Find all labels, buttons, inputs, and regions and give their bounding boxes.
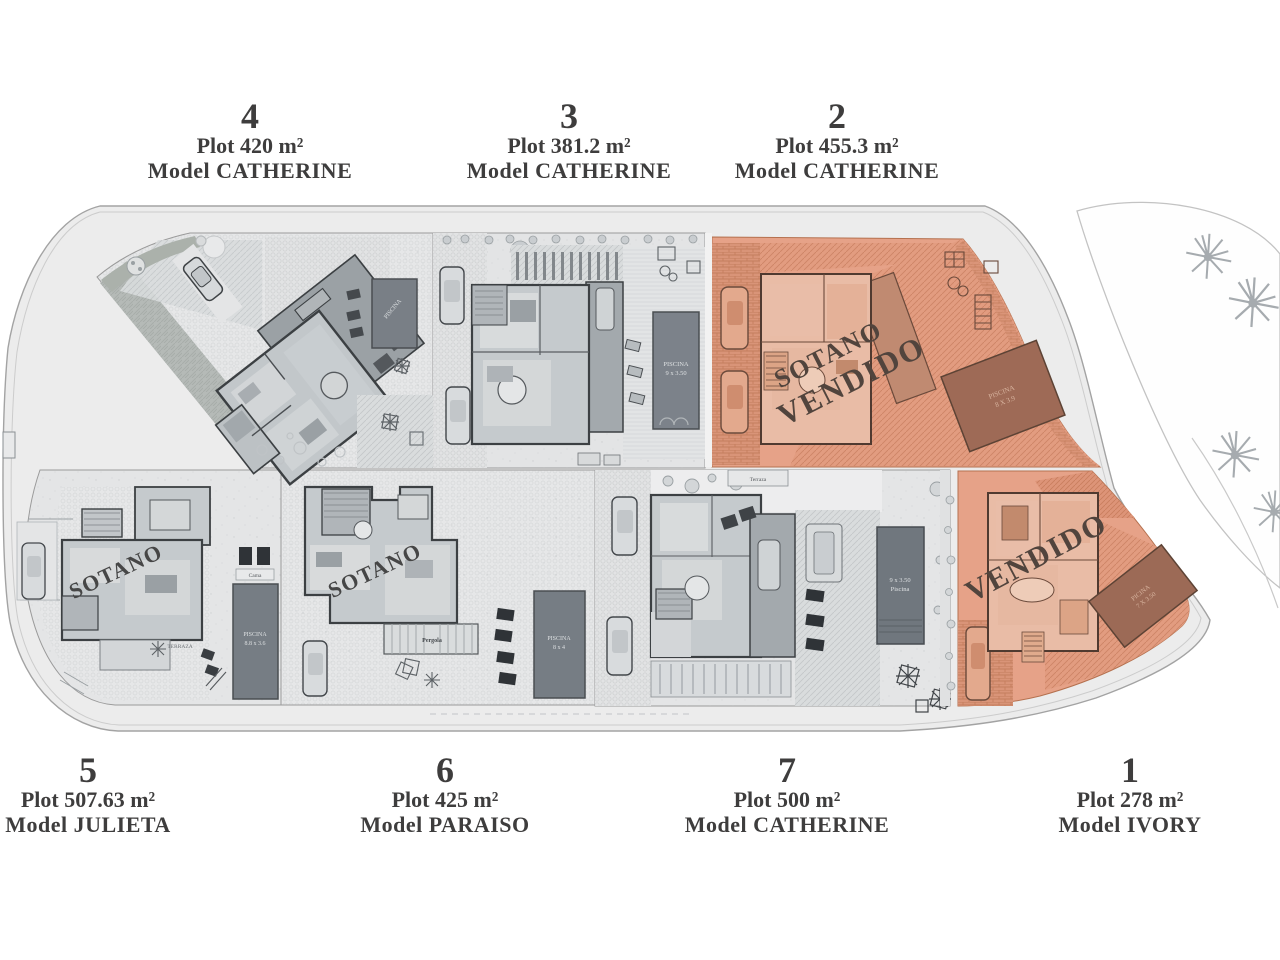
svg-text:8.8 x 3.6: 8.8 x 3.6 [245,641,266,647]
svg-text:9 x 3.50: 9 x 3.50 [889,577,910,584]
svg-text:Pergola: Pergola [422,638,442,644]
svg-text:PISCINA: PISCINA [547,636,571,642]
svg-text:PISCINA: PISCINA [243,632,267,638]
svg-text:Piscina: Piscina [891,586,910,593]
svg-text:PISCINA: PISCINA [663,361,689,368]
svg-text:8 x 4: 8 x 4 [553,645,565,651]
svg-text:TERRAZA: TERRAZA [167,644,192,650]
svg-text:9 x 3.50: 9 x 3.50 [665,370,686,377]
svg-text:Cama: Cama [249,573,262,579]
svg-text:Terraza: Terraza [750,477,767,483]
